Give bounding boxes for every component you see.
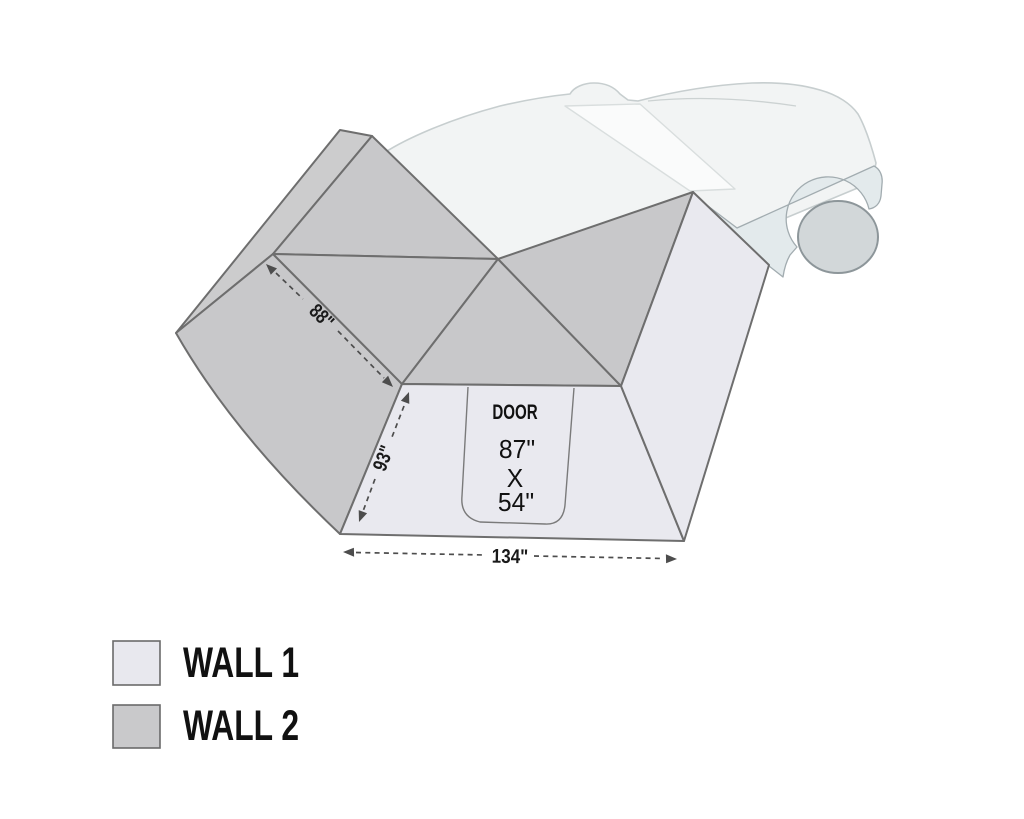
dimension-bottom-edge-dash-1 <box>356 553 486 556</box>
diagram-canvas: DOOR 87" X 54" 88" 93" 134" WALL 1 WALL … <box>0 0 1024 819</box>
legend-swatch-wall-1 <box>113 641 160 685</box>
door-label: DOOR <box>492 399 537 423</box>
legend-label-wall-1: WALL 1 <box>183 639 299 687</box>
dimension-bottom-edge: 134" <box>343 544 677 567</box>
car-wheel <box>798 201 878 273</box>
door-height-text: 54" <box>498 488 534 517</box>
dimension-bottom-edge-dash-2 <box>534 556 664 559</box>
legend-label-wall-2: WALL 2 <box>183 702 299 750</box>
awning-dimensions-diagram: DOOR 87" X 54" 88" 93" 134" WALL 1 WALL … <box>0 0 1024 819</box>
dimension-bottom-edge-label: 134" <box>492 544 529 567</box>
dimension-bottom-edge-arrowhead-end <box>666 554 677 563</box>
dimension-bottom-edge-arrowhead-start <box>343 548 354 557</box>
legend: WALL 1 WALL 2 <box>113 639 299 750</box>
door-width-text: 87" <box>499 435 535 464</box>
legend-swatch-wall-2 <box>113 705 160 748</box>
